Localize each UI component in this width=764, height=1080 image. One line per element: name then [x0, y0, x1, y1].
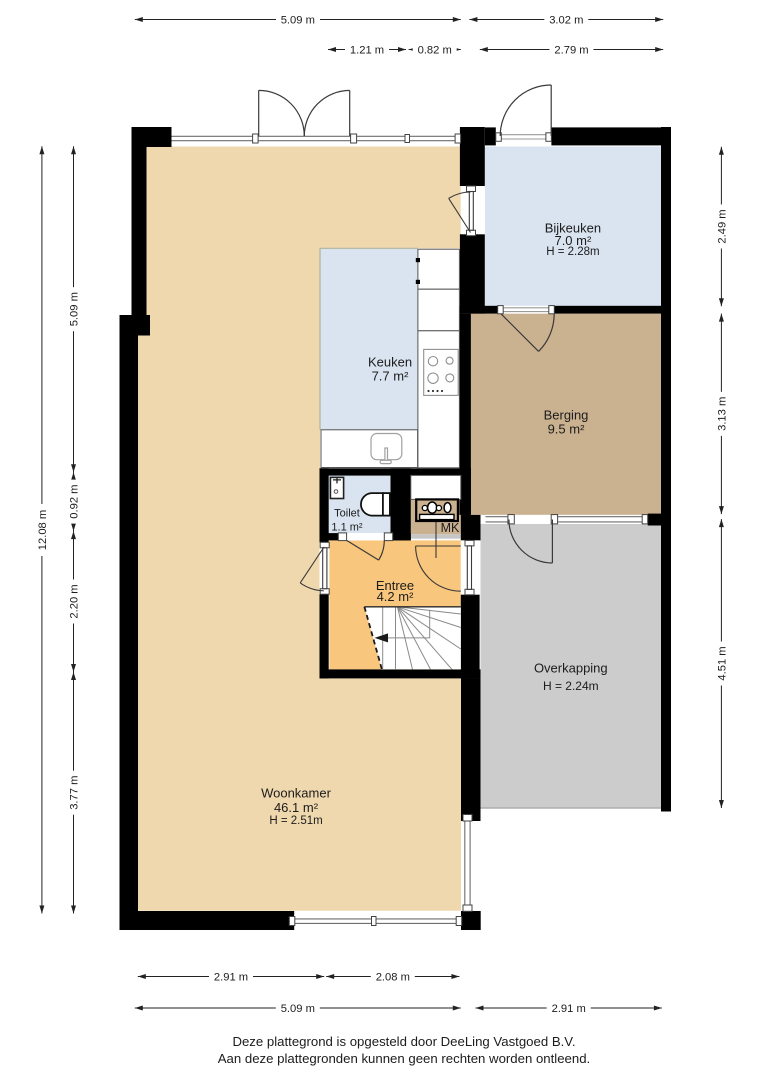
svg-text:3.02 m: 3.02 m — [549, 15, 583, 27]
svg-text:5.09 m: 5.09 m — [281, 15, 315, 27]
svg-text:0.82 m: 0.82 m — [418, 45, 452, 57]
svg-text:Toilet: Toilet — [334, 508, 360, 520]
svg-text:Woonkamer: Woonkamer — [261, 786, 332, 801]
svg-text:Overkapping: Overkapping — [534, 661, 608, 676]
svg-text:2.49 m: 2.49 m — [716, 209, 728, 243]
svg-text:1.21 m: 1.21 m — [350, 45, 384, 57]
svg-text:2.08 m: 2.08 m — [376, 972, 410, 984]
svg-text:Aan deze plattegronden kunnen: Aan deze plattegronden kunnen geen recht… — [218, 1051, 590, 1066]
svg-text:3.13 m: 3.13 m — [716, 397, 728, 431]
svg-text:MK: MK — [441, 521, 460, 535]
svg-text:7.7 m²: 7.7 m² — [372, 369, 410, 384]
svg-text:4.2 m²: 4.2 m² — [377, 589, 415, 604]
svg-text:0.92 m: 0.92 m — [69, 484, 81, 518]
svg-text:2.91 m: 2.91 m — [552, 1003, 586, 1015]
svg-text:9.5 m²: 9.5 m² — [548, 422, 586, 437]
svg-text:H = 2.28m: H = 2.28m — [546, 246, 599, 258]
svg-text:Berging: Berging — [544, 408, 589, 423]
svg-text:Keuken: Keuken — [368, 355, 412, 370]
svg-text:Deze plattegrond is opgesteld: Deze plattegrond is opgesteld door DeeLi… — [232, 1034, 575, 1049]
svg-text:5.09 m: 5.09 m — [69, 292, 81, 326]
svg-text:4.51 m: 4.51 m — [716, 646, 728, 680]
svg-text:46.1 m²: 46.1 m² — [274, 800, 319, 815]
svg-text:H = 2.24m: H = 2.24m — [543, 679, 599, 693]
svg-text:H = 2.51m: H = 2.51m — [269, 815, 322, 827]
svg-text:2.79 m: 2.79 m — [554, 45, 588, 57]
svg-text:5.09 m: 5.09 m — [281, 1003, 315, 1015]
svg-text:12.08 m: 12.08 m — [37, 510, 49, 550]
svg-text:2.20 m: 2.20 m — [69, 584, 81, 618]
svg-text:3.77 m: 3.77 m — [69, 776, 81, 810]
svg-text:1.1 m²: 1.1 m² — [331, 522, 363, 534]
svg-text:2.91 m: 2.91 m — [214, 972, 248, 984]
